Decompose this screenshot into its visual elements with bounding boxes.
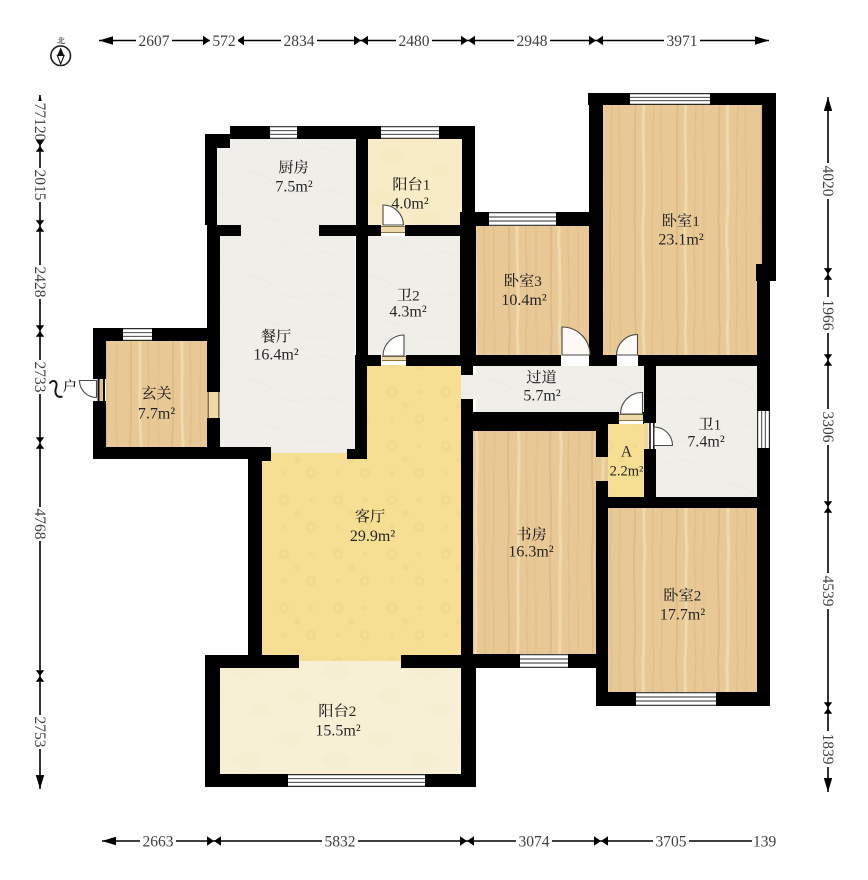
svg-text:2753: 2753 — [31, 717, 48, 748]
svg-text:2948: 2948 — [517, 33, 548, 50]
svg-text:139: 139 — [753, 833, 777, 850]
svg-text:16.3m²: 16.3m² — [508, 544, 553, 561]
svg-text:23.1m²: 23.1m² — [658, 232, 703, 249]
svg-text:4020: 4020 — [819, 166, 836, 197]
svg-text:7.4m²: 7.4m² — [687, 434, 724, 451]
svg-text:5832: 5832 — [325, 833, 356, 850]
svg-text:2834: 2834 — [284, 33, 315, 50]
svg-text:17.7m²: 17.7m² — [660, 607, 705, 624]
svg-text:3971: 3971 — [667, 33, 698, 50]
svg-text:29.9m²: 29.9m² — [350, 528, 395, 545]
svg-text:1: 1 — [714, 417, 722, 434]
svg-text:1839: 1839 — [819, 734, 836, 765]
svg-text:2663: 2663 — [143, 833, 174, 850]
svg-text:3306: 3306 — [819, 412, 836, 443]
svg-text:2480: 2480 — [399, 33, 430, 50]
svg-text:2: 2 — [412, 288, 420, 305]
svg-text:77120: 77120 — [31, 103, 48, 142]
svg-text:3074: 3074 — [519, 833, 550, 850]
svg-text:2607: 2607 — [139, 33, 170, 50]
svg-text:572: 572 — [212, 33, 235, 50]
svg-text:4.3m²: 4.3m² — [389, 304, 426, 321]
svg-text:2733: 2733 — [31, 362, 48, 393]
svg-text:16.4m²: 16.4m² — [253, 347, 298, 364]
svg-text:7.5m²: 7.5m² — [275, 179, 312, 196]
svg-text:2: 2 — [694, 588, 702, 605]
svg-text:1: 1 — [423, 177, 431, 194]
svg-text:2.2m²: 2.2m² — [610, 464, 644, 480]
svg-text:1: 1 — [692, 213, 700, 230]
svg-text:4539: 4539 — [819, 576, 836, 607]
svg-text:2015: 2015 — [31, 170, 48, 201]
svg-text:3: 3 — [534, 273, 542, 290]
svg-text:3705: 3705 — [656, 833, 687, 850]
svg-text:15.5m²: 15.5m² — [315, 723, 360, 740]
svg-text:7.7m²: 7.7m² — [138, 406, 175, 423]
svg-text:2: 2 — [349, 703, 357, 720]
svg-text:5.7m²: 5.7m² — [523, 388, 560, 405]
svg-text:4768: 4768 — [31, 509, 48, 540]
svg-text:1966: 1966 — [819, 300, 836, 331]
svg-text:10.4m²: 10.4m² — [501, 292, 546, 309]
svg-text:A: A — [621, 444, 633, 461]
svg-text:2428: 2428 — [31, 267, 48, 298]
